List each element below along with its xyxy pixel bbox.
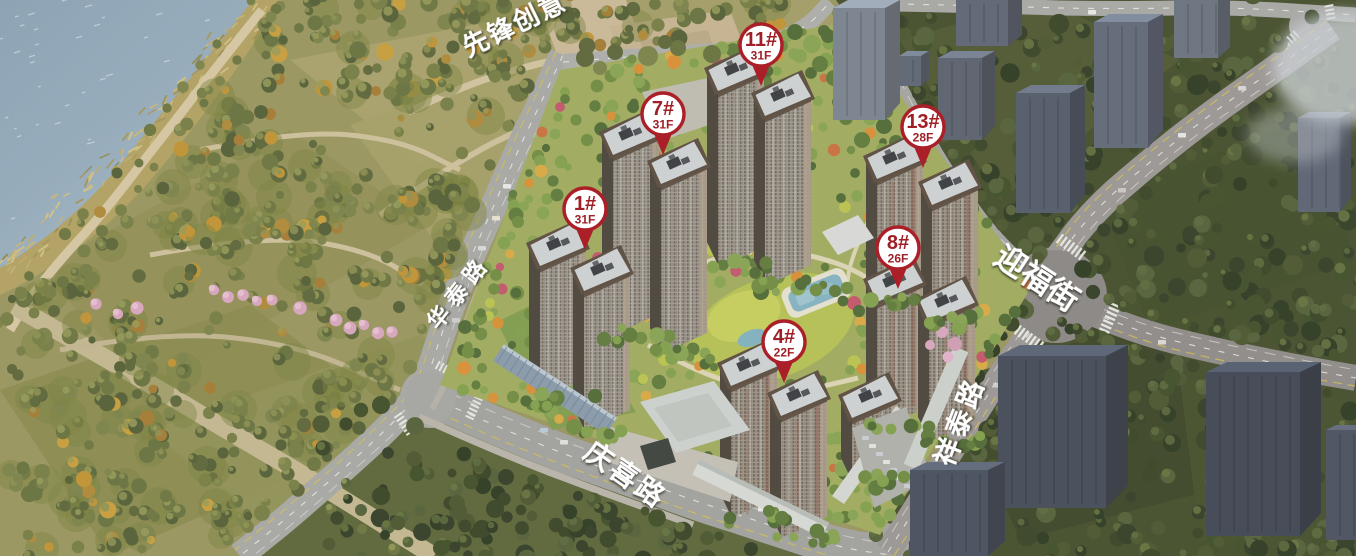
svg-text:31F: 31F <box>653 118 674 132</box>
svg-text:22F: 22F <box>774 346 795 360</box>
svg-text:26F: 26F <box>888 252 909 266</box>
svg-text:28F: 28F <box>913 131 934 145</box>
svg-text:31F: 31F <box>575 213 596 227</box>
svg-text:31F: 31F <box>751 49 772 63</box>
